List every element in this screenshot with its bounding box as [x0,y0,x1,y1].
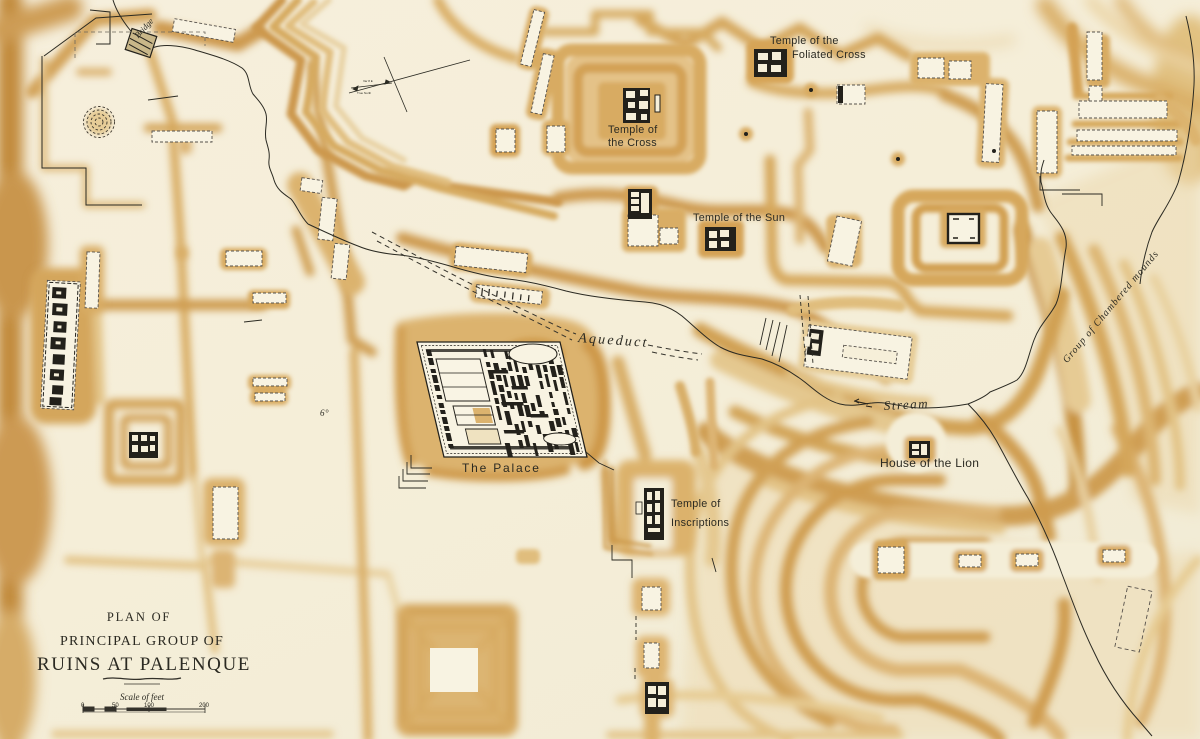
svg-text:Foliated Cross: Foliated Cross [792,49,866,61]
svg-text:100: 100 [144,703,155,709]
svg-text:50: 50 [112,703,119,709]
svg-text:Stream: Stream [883,396,929,413]
svg-text:Scale of feet: Scale of feet [120,692,164,702]
svg-text:True North: True North [357,91,372,95]
svg-text:Inscriptions: Inscriptions [671,517,730,529]
svg-text:Temple of the: Temple of the [770,35,839,47]
svg-text:200: 200 [199,703,210,709]
svg-text:Temple of the Sun: Temple of the Sun [693,212,785,224]
svg-text:The Palace: The Palace [462,461,541,475]
svg-text:PLAN OF: PLAN OF [107,610,171,624]
svg-text:Temple of: Temple of [608,124,658,136]
svg-text:Temple of: Temple of [671,498,721,510]
svg-text:PRINCIPAL GROUP OF: PRINCIPAL GROUP OF [60,634,224,649]
svg-text:House of the Lion: House of the Lion [880,456,979,470]
svg-text:Var 8 E: Var 8 E [363,79,373,83]
svg-text:6°: 6° [320,408,329,418]
svg-text:the Cross: the Cross [608,137,657,149]
svg-text:RUINS AT PALENQUE: RUINS AT PALENQUE [37,654,251,675]
